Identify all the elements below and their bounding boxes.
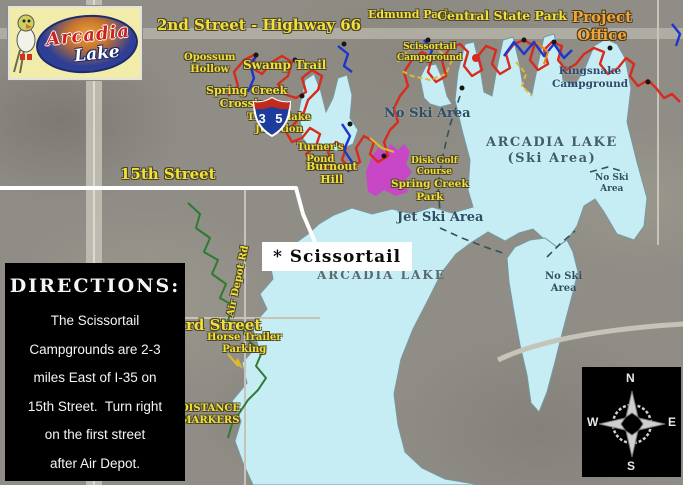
compass-west-label: W — [587, 415, 598, 429]
directions-title: DIRECTIONS: — [5, 275, 185, 297]
label-15th-street: 15th Street — [120, 165, 216, 183]
label-disk-golf-course: Disk Golf Course — [411, 156, 458, 178]
label-opossum-hollow: Opossum Hollow — [184, 52, 235, 76]
compass-north-label: N — [626, 371, 635, 385]
horse-trailer-arrow-icon — [228, 354, 243, 369]
label-spring-creek-park: Spring Creek Park — [391, 178, 469, 203]
label-kingsnake-campground: Kingsnake Campground — [552, 65, 628, 90]
label-distance-markers: DISTANCE MARKERS — [180, 403, 240, 427]
scissortail-marker-box: * Scissortail — [262, 242, 412, 271]
label-swamp-trail: Swamp Trail — [243, 58, 326, 72]
bird-mascot-icon — [10, 10, 44, 76]
label-project-office: Project Office — [566, 8, 638, 44]
label-2nd-street: 2nd Street - Highway 66 — [157, 16, 361, 34]
label-no-ski-area-south: No Ski Area — [545, 271, 582, 295]
scissortail-marker-text: * Scissortail — [273, 247, 401, 267]
directions-box: DIRECTIONS: The Scissortail Campgrounds … — [5, 263, 185, 481]
label-no-ski-area-nw: No Ski Area — [384, 106, 471, 122]
label-no-ski-area-east: No Ski Area — [595, 173, 629, 195]
arcadia-lake-logo: Arcadia Lake — [8, 6, 142, 80]
shield-number: 3 5 — [252, 111, 292, 126]
label-burnout-hill: Burnout Hill — [306, 160, 358, 186]
arcadia-lake-map: 2nd Street - Highway 66 Edmund Park Cent… — [0, 0, 683, 485]
directions-body: The Scissortail Campgrounds are 2-3 mile… — [5, 307, 185, 479]
compass-east-label: E — [668, 415, 676, 429]
lake-right-arm — [507, 238, 578, 412]
label-jet-ski-area: Jet Ski Area — [397, 210, 483, 226]
compass-box: N S W E — [582, 367, 681, 477]
compass-south-label: S — [627, 459, 635, 473]
blue-trail-2 — [338, 46, 352, 72]
label-central-state-park: Central State Park — [437, 8, 567, 23]
interstate-35-shield-icon: 3 5 — [252, 97, 292, 137]
route-15th-street — [0, 188, 315, 242]
label-scissortail-campground: Scissortail Campground — [397, 42, 462, 64]
label-arcadia-lake-ski-area: ARCADIA LAKE (Ski Area) — [486, 135, 618, 166]
label-horse-trailer-parking: Horse Trailer Parking — [207, 332, 282, 356]
